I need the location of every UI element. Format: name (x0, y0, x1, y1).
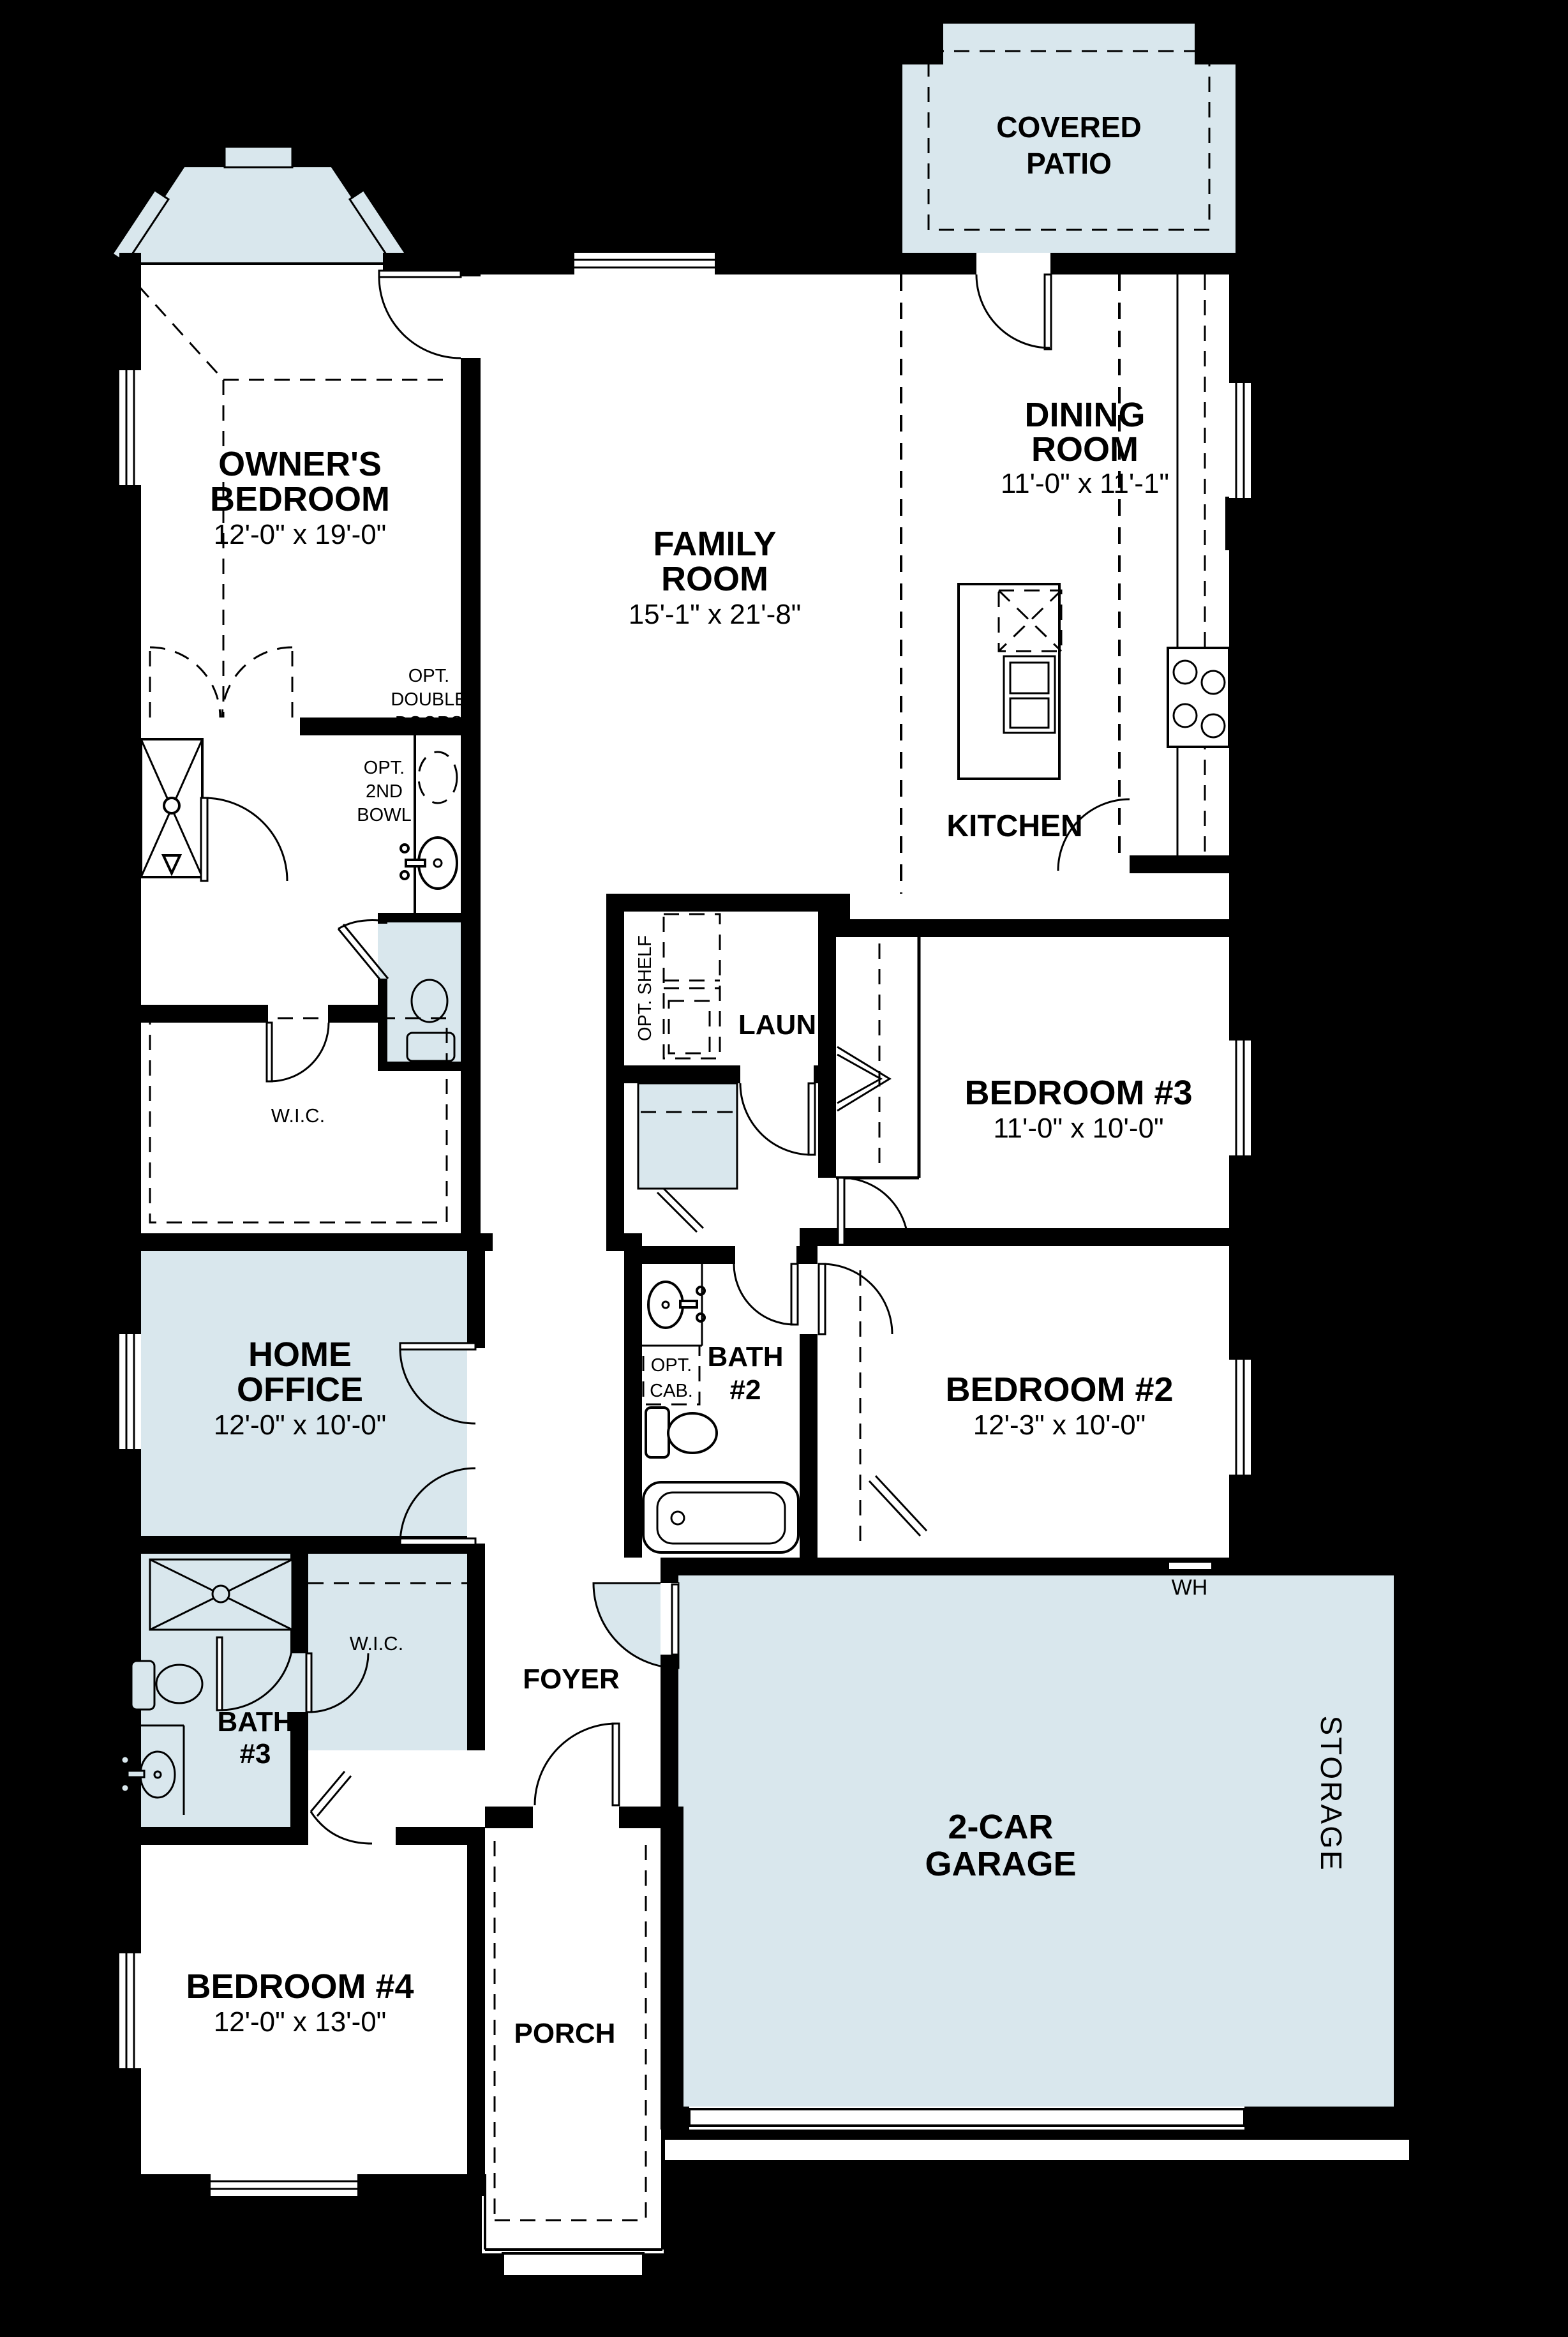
svg-text:OFFICE: OFFICE (237, 1371, 363, 1409)
svg-text:BOWL: BOWL (357, 805, 411, 825)
label-bath2: BATH (708, 1341, 784, 1372)
label-opt-2nd-bowl: OPT. (364, 758, 405, 778)
label-wh: WH (1172, 1575, 1208, 1600)
patio-post (1195, 22, 1237, 64)
svg-text:PATIO: PATIO (1026, 147, 1112, 180)
svg-text:11'-0" x 10'-0": 11'-0" x 10'-0" (993, 1113, 1163, 1144)
label-kitchen: KITCHEN (946, 809, 1082, 843)
window (211, 2174, 357, 2196)
label-porch: PORCH (514, 2018, 616, 2049)
label-laundry: LAUN (738, 1009, 816, 1041)
water-heater (1168, 1561, 1213, 1570)
svg-text:ROOM: ROOM (661, 560, 768, 598)
window (574, 253, 715, 274)
linen-closet (638, 1083, 737, 1189)
label-wic-owner: W.I.C. (271, 1104, 325, 1127)
svg-text:15'-1" x 21'-8": 15'-1" x 21'-8" (629, 599, 802, 630)
shower-owner (141, 739, 202, 877)
label-dining-room: DINING (1025, 396, 1146, 434)
label-covered-patio: COVERED (996, 110, 1141, 144)
label-storage: STORAGE (1315, 1715, 1348, 1872)
label-bath3: BATH (218, 1706, 294, 1738)
window (119, 1334, 141, 1449)
svg-text:11'-0" x 11'-1": 11'-0" x 11'-1" (1001, 468, 1169, 499)
svg-text:CAB.: CAB. (650, 1381, 693, 1401)
patio-post (901, 22, 943, 64)
driveway-step (664, 2138, 1410, 2161)
label-bedroom4: BEDROOM #4 (186, 1967, 414, 2006)
svg-text:BEDROOM: BEDROOM (210, 480, 390, 518)
svg-text:2ND: 2ND (366, 781, 403, 802)
svg-text:#3: #3 (240, 1738, 271, 1770)
floor-plan-page: COVERED PATIO OWNER'S BEDROOM 12'-0" x 1… (0, 0, 1568, 2337)
svg-text:ROOM: ROOM (1031, 430, 1139, 469)
label-owners-bedroom: OWNER'S (218, 445, 382, 483)
window (1229, 1360, 1251, 1475)
garage-door (689, 2109, 1244, 2126)
svg-text:GARAGE: GARAGE (925, 1845, 1076, 1883)
label-opt-shelf: OPT. SHELF (635, 935, 655, 1041)
window (1229, 1041, 1251, 1155)
label-opt-cab: OPT. (651, 1355, 692, 1376)
window (1229, 383, 1251, 498)
label-wic-bed4: W.I.C. (350, 1632, 403, 1655)
door-garage-entry (672, 1584, 678, 1655)
label-bedroom3: BEDROOM #3 (964, 1074, 1192, 1112)
svg-text:12'-0" x 10'-0": 12'-0" x 10'-0" (214, 1409, 387, 1441)
svg-text:DOUBLE: DOUBLE (391, 689, 467, 710)
window (119, 1953, 141, 2068)
label-family-room: FAMILY (653, 525, 776, 563)
label-foyer: FOYER (523, 1664, 620, 1695)
svg-text:12'-0" x 13'-0": 12'-0" x 13'-0" (214, 2006, 387, 2038)
label-opt-double-doors: OPT. (408, 666, 449, 686)
svg-text:#2: #2 (730, 1374, 761, 1406)
svg-text:12'-0" x 19'-0": 12'-0" x 19'-0" (214, 519, 387, 550)
svg-text:DOORS: DOORS (395, 713, 463, 733)
label-garage: 2-CAR (948, 1808, 1053, 1846)
svg-text:12'-3" x 10'-0": 12'-3" x 10'-0" (973, 1409, 1146, 1441)
porch-step (503, 2253, 643, 2276)
label-home-office: HOME (248, 1335, 352, 1374)
window (119, 370, 141, 485)
floor-plan-svg: COVERED PATIO OWNER'S BEDROOM 12'-0" x 1… (0, 0, 1568, 2337)
label-bedroom2: BEDROOM #2 (945, 1371, 1173, 1409)
kitchen-island (959, 584, 1061, 779)
